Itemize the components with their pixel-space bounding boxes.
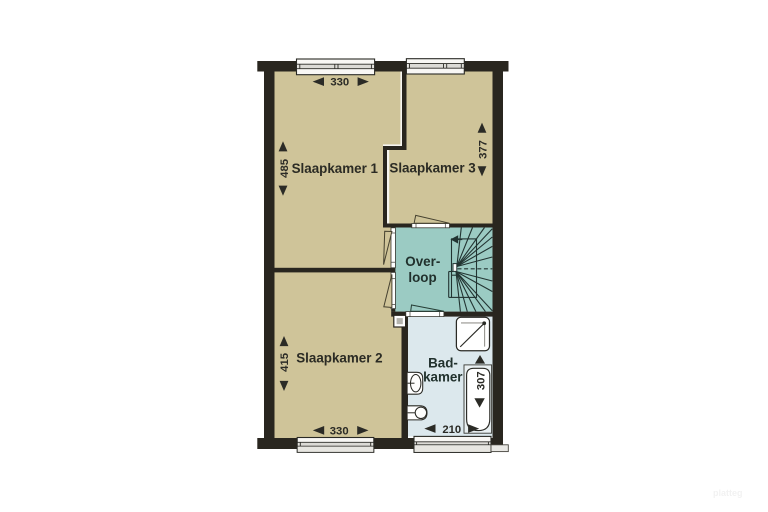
svg-text:kamer: kamer [423,370,463,385]
svg-text:loop: loop [408,270,436,285]
svg-text:Bad-: Bad- [428,355,458,370]
svg-text:485: 485 [279,159,291,178]
svg-text:210: 210 [442,424,461,436]
svg-text:Slaapkamer 1: Slaapkamer 1 [292,161,379,176]
svg-text:Slaapkamer 2: Slaapkamer 2 [296,350,382,365]
svg-text:Slaapkamer 3: Slaapkamer 3 [389,160,475,175]
svg-text:platteg: platteg [713,488,743,498]
svg-text:330: 330 [330,425,349,437]
svg-text:330: 330 [330,77,349,89]
svg-text:415: 415 [279,353,291,372]
svg-text:377: 377 [477,140,489,159]
svg-text:Over-: Over- [405,254,440,269]
svg-text:307: 307 [475,371,487,390]
